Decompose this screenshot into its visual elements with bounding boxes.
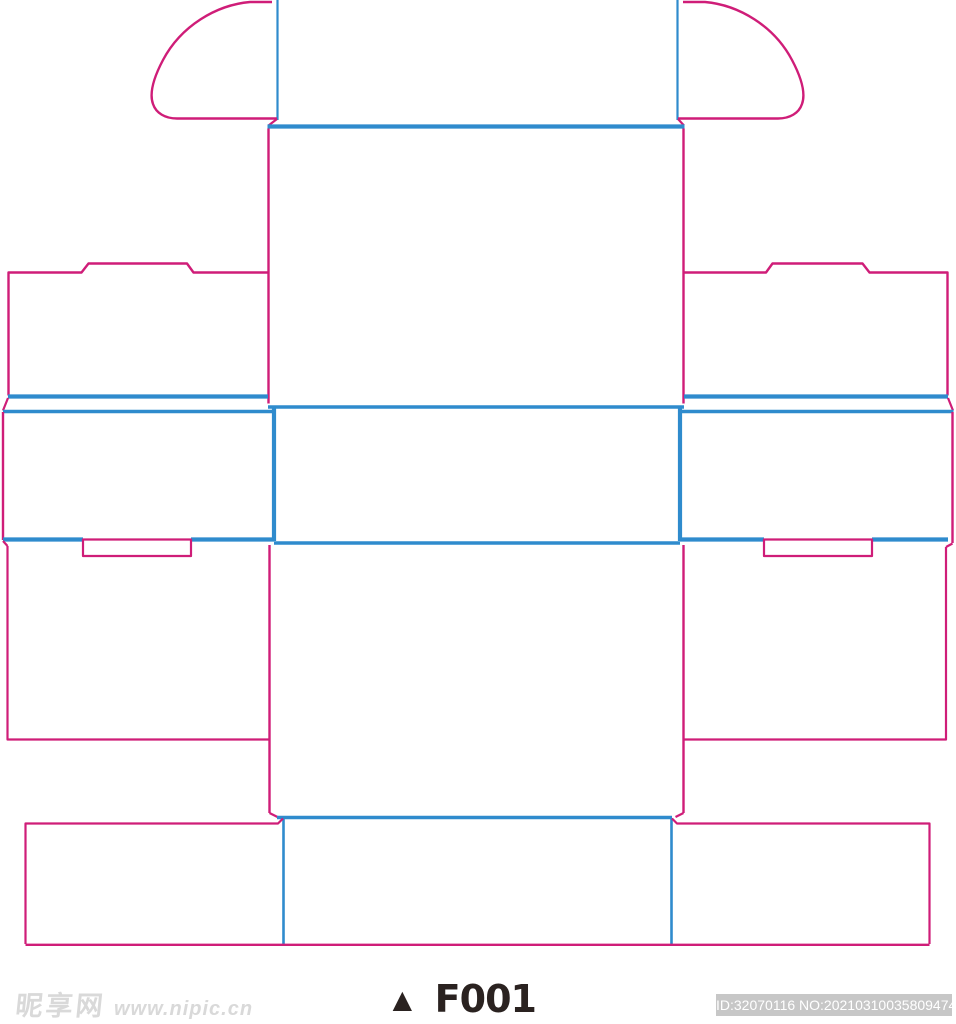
template-label: ▲ F001 [386,984,536,1015]
triangle-icon: ▲ [386,985,419,1015]
left-ear-cut [152,2,277,119]
left-band-corner-cut [3,541,8,546]
bottom-left-flap-cut [26,819,284,945]
left-bottom-step-cut [270,813,278,817]
lower-right-flap-cut [684,547,946,740]
footer: 昵享网 www.nipic.cn ▲ F001 ID:32070116 NO:2… [0,960,956,1024]
right-lock-slot-cut [764,540,872,557]
right-band-corner-cut [946,544,953,548]
left-edge-step-cut [3,398,8,411]
right-bottom-step-cut [676,813,684,817]
template-code: F001 [435,984,536,1015]
nipic-watermark: 昵享网 www.nipic.cn [16,984,253,1023]
page: 昵享网 www.nipic.cn ▲ F001 ID:32070116 NO:2… [0,0,956,1024]
left-lock-slot-cut [83,540,191,557]
dieline-diagram [0,0,956,964]
nipic-logo: 昵享网 [14,984,108,1023]
right-edge-step-cut [948,398,953,411]
right-ear-cut [678,2,803,119]
upper-left-flap-cut [9,264,269,396]
upper-right-flap-cut [684,264,948,396]
lower-left-flap-cut [8,546,270,740]
id-badge: ID:32070116 NO:20210310035809474037 [716,994,952,1016]
bottom-right-flap-cut [672,819,930,945]
nipic-url: www.nipic.cn [114,998,253,1021]
